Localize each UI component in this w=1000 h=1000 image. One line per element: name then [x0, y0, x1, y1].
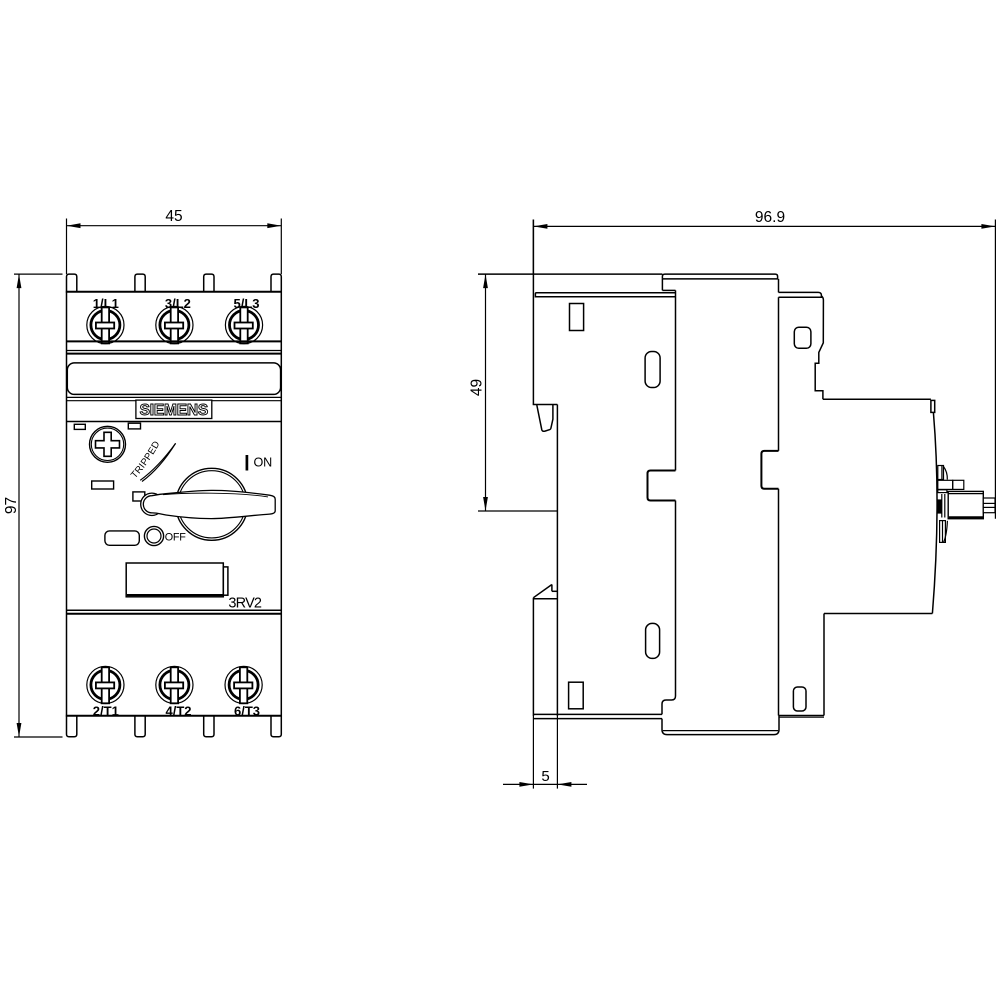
- svg-text:49: 49: [469, 379, 486, 396]
- svg-text:5: 5: [541, 768, 549, 785]
- svg-text:45: 45: [165, 208, 182, 225]
- svg-text:96.9: 96.9: [755, 209, 785, 226]
- svg-text:6/T3: 6/T3: [234, 703, 260, 718]
- svg-text:2/T1: 2/T1: [93, 703, 119, 718]
- svg-text:ON: ON: [254, 456, 273, 470]
- svg-text:4/T2: 4/T2: [165, 703, 191, 718]
- svg-text:SIEMENS: SIEMENS: [140, 402, 208, 419]
- svg-text:3RV2: 3RV2: [228, 596, 262, 612]
- svg-text:97: 97: [3, 497, 20, 514]
- svg-text:OFF: OFF: [165, 531, 186, 543]
